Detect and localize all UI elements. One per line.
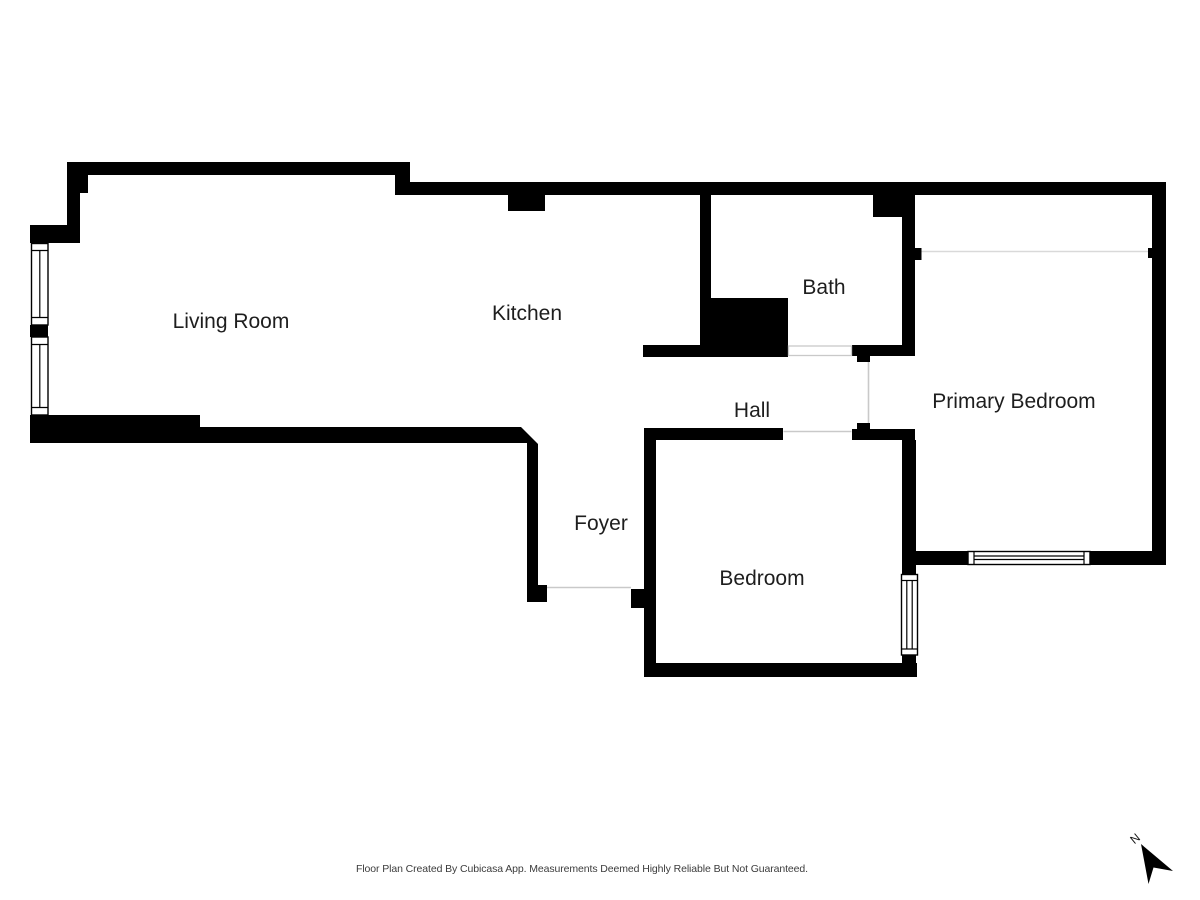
room-label-bedroom: Bedroom <box>719 567 804 590</box>
wall-window-separator <box>30 325 48 337</box>
wall-kitchen-bottom <box>643 345 788 357</box>
wall-bath-foot <box>852 345 915 356</box>
openings <box>547 252 1148 588</box>
wall-bath-notch <box>873 195 915 217</box>
room-label-kitchen: Kitchen <box>492 302 562 325</box>
wall-hall-nub-top <box>857 356 870 362</box>
wall-divider-nub-right <box>1148 248 1153 258</box>
wall-divider-nub-left <box>913 248 922 260</box>
wall-top-main <box>395 182 1166 195</box>
wall-bath-right <box>902 217 915 356</box>
wall-right-exterior <box>1152 182 1166 565</box>
floor-plan-page: Living Room Kitchen Bath Hall Primary Be… <box>0 0 1200 900</box>
window-living-upper <box>32 244 49 326</box>
wall-kitchen-notch <box>508 195 545 211</box>
north-arrow-icon <box>1141 844 1173 884</box>
window-bedroom <box>902 575 918 656</box>
wall-living-top-left <box>30 162 410 243</box>
wall-bedroom-bottom <box>644 663 917 677</box>
window-primary-bedroom <box>968 552 1090 565</box>
wall-foyer-jamb <box>631 589 644 608</box>
wall-bedroom-left <box>644 428 656 677</box>
north-compass: N <box>1127 831 1173 884</box>
room-label-hall: Hall <box>734 399 770 422</box>
wall-primary-bottom-right <box>1090 551 1166 565</box>
footer-disclaimer: Floor Plan Created By Cubicasa App. Meas… <box>356 863 808 875</box>
wall-bedroom-top-foot <box>852 429 915 440</box>
window-living-lower <box>32 337 49 415</box>
room-label-living-room: Living Room <box>173 310 290 333</box>
room-label-foyer: Foyer <box>574 512 628 535</box>
wall-living-bottom-foyer <box>30 415 547 602</box>
walls <box>30 162 1166 677</box>
wall-hall-nub-bottom <box>857 423 870 430</box>
opening-bath-door <box>789 346 852 356</box>
floor-plan-canvas: Living Room Kitchen Bath Hall Primary Be… <box>0 0 1200 900</box>
north-label: N <box>1127 831 1143 847</box>
room-label-primary-bedroom: Primary Bedroom <box>932 390 1095 413</box>
room-label-bath: Bath <box>802 276 845 299</box>
wall-primary-bottom-left <box>902 551 968 565</box>
wall-bedroom-right-lower <box>902 655 916 663</box>
wall-bedroom-top <box>644 428 783 440</box>
